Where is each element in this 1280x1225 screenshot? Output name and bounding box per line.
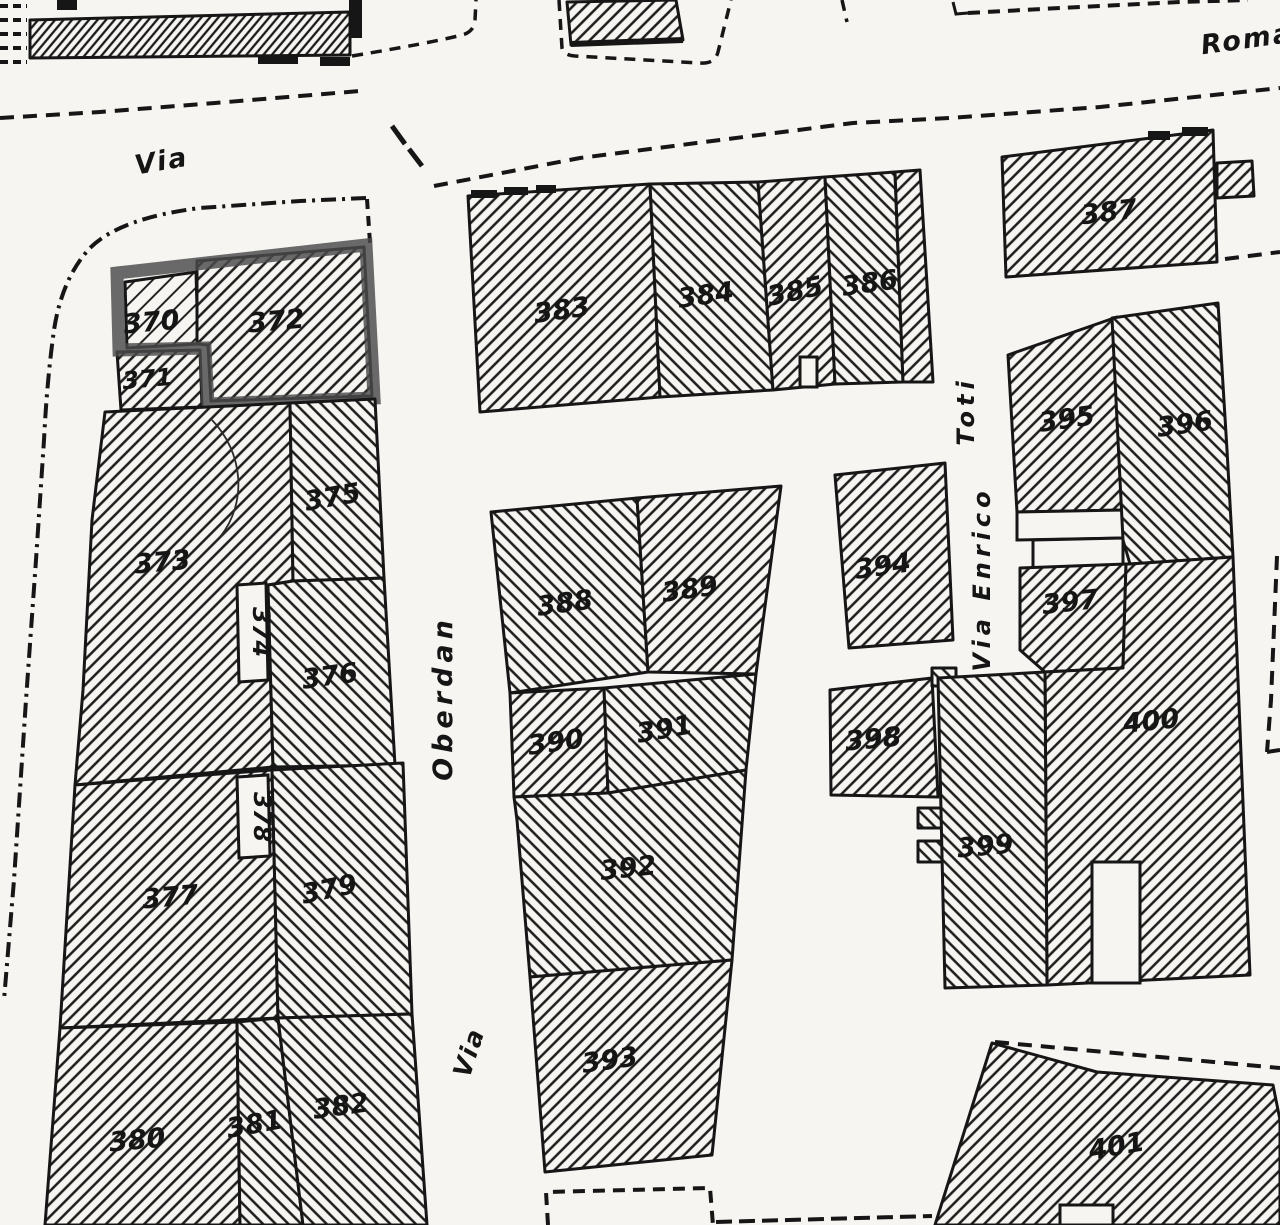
parcel-399: 399 (918, 668, 1047, 988)
parcel-384: 384 (650, 182, 773, 397)
parcel-387: 387 (1002, 127, 1254, 277)
street-label-via-lower: Via (447, 1024, 490, 1081)
parcel-397: 397 (1020, 564, 1126, 672)
parcel-370: 370 (122, 272, 198, 348)
parcel-390: 390 (510, 688, 608, 797)
map-canvas: Via Roma Oberdan Via Via Enrico Toti 370… (0, 0, 1280, 1225)
svg-text:397: 397 (1040, 584, 1100, 621)
parcel-sliver (895, 170, 933, 382)
svg-text:374: 374 (247, 607, 275, 657)
parcel-379: 379 (272, 763, 412, 1018)
parcel-382: 382 (278, 1014, 427, 1225)
svg-text:373: 373 (133, 545, 192, 581)
svg-text:371: 371 (121, 363, 173, 395)
parcel-386: 386 (825, 172, 903, 384)
dashed-corner-right (842, 0, 847, 22)
street-label-oberdan: Oberdan (428, 615, 459, 781)
svg-text:372: 372 (247, 304, 306, 340)
svg-text:380: 380 (108, 1123, 167, 1159)
parcel-389: 389 (637, 486, 781, 674)
parcel-380: 380 (45, 1022, 240, 1225)
parcel-376: 376 (268, 578, 395, 767)
top-middle-building (559, 0, 731, 63)
parcel-372: 372 (197, 247, 372, 401)
svg-text:399: 399 (956, 829, 1015, 865)
street-label-via-enrico: Via Enrico (968, 486, 996, 671)
parcel-392: 392 (514, 770, 746, 977)
svg-text:377: 377 (141, 880, 200, 916)
street-label-via-top: Via (132, 142, 190, 182)
parcel-375: 375 (290, 399, 384, 581)
svg-text:392: 392 (598, 850, 657, 887)
parcel-401: 401 (935, 1043, 1280, 1225)
parcel-395: 395 (1008, 317, 1123, 512)
parcel-396: 396 (1112, 303, 1233, 564)
parcel-394: 394 (835, 463, 953, 648)
top-strip-building (30, 0, 362, 66)
parcel-371: 371 (117, 350, 202, 410)
svg-text:398: 398 (844, 722, 903, 758)
dashed-corner-left (352, 0, 476, 56)
parcel-398: 398 (830, 678, 938, 797)
parcel-388: 388 (491, 498, 648, 693)
parcel-385: 385 (758, 177, 835, 390)
parcel-383: 383 (468, 184, 660, 412)
svg-text:378: 378 (248, 792, 276, 842)
street-label-roma: Roma (1199, 18, 1280, 62)
courtyard-strips-395 (1017, 510, 1123, 568)
cadastral-map: Via Roma Oberdan Via Via Enrico Toti 370… (0, 0, 1280, 1225)
street-label-toti: Toti (952, 376, 980, 445)
svg-text:370: 370 (122, 305, 181, 341)
parcel-393: 393 (530, 960, 732, 1172)
svg-text:400: 400 (1120, 703, 1180, 740)
